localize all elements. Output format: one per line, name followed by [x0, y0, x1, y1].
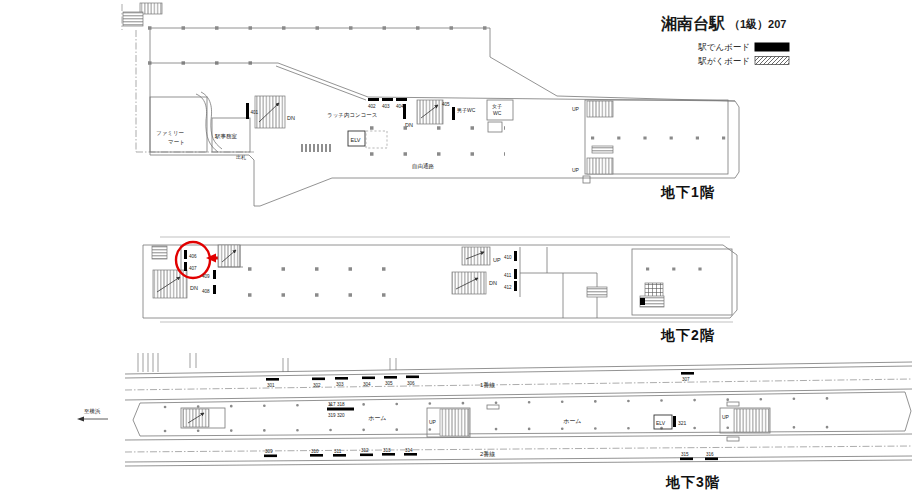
b2f-right-room — [632, 249, 732, 315]
b2f-stair-dn-left: DN — [153, 270, 198, 298]
b3f-columns-row1 — [165, 398, 855, 407]
board-305-label: 305 — [385, 381, 393, 386]
floorplan-drawing: 湘南台駅 （1級）207 駅でんボード 駅がくボード — [0, 0, 919, 491]
ticket-window-label: 出札 — [236, 154, 246, 160]
b1f-elv-label: ELV — [351, 137, 361, 143]
up-label-bottom: UP — [572, 167, 580, 173]
b2f-right-walls — [520, 247, 663, 318]
board-405-bar — [452, 107, 455, 120]
b1f-plan: ファミリー マート 駅事務室 出札 DN 401 ラッチ内コンコース ELV — [122, 3, 739, 206]
dn-label-left: DN — [287, 115, 295, 121]
board-306-label: 306 — [407, 381, 415, 386]
board-307-label: 307 — [682, 377, 690, 382]
board-316-label: 316 — [706, 452, 714, 457]
b2f-stair-up-mid: UP — [462, 247, 501, 265]
b3f-stair-up-right: UP — [720, 408, 770, 433]
board-310-label: 310 — [311, 449, 319, 454]
b2f-up-label: UP — [493, 257, 501, 263]
legend-swatch-hatched — [755, 57, 789, 65]
legend-label-ekigaku-board: 駅がくボード — [697, 56, 750, 66]
family-mart-label-1: ファミリー — [156, 130, 184, 136]
board-317-318-label: 317 318 — [328, 402, 345, 407]
legend-row-ekiden: 駅でんボード — [697, 42, 789, 52]
b2f-dn-label-mid: DN — [489, 280, 497, 286]
board-302-label: 302 — [313, 383, 321, 388]
board-313-label: 313 — [383, 448, 391, 453]
board-402-label: 402 — [368, 104, 376, 109]
board-404-label: 404 — [396, 104, 404, 109]
womens-wc-label-1: 女子 — [492, 103, 502, 110]
board-409-label: 409 — [202, 274, 210, 279]
mens-wc-label: 男子WC — [457, 107, 476, 114]
b3f-stair-up-mid: UP — [427, 408, 470, 437]
board-312-label: 312 — [361, 448, 369, 453]
board-319-320-label: 319 320 — [328, 413, 345, 418]
board-412-label: 412 — [504, 285, 512, 290]
board-304-label: 304 — [363, 382, 371, 387]
b2f-floor-name: 地下2階 — [660, 327, 715, 343]
b1f-stair-up-top-icon — [587, 101, 613, 117]
direction-label: 至横浜 — [84, 408, 101, 415]
b1f-entrance-stairs-icon — [122, 3, 162, 30]
board-321-label: 321 — [678, 420, 687, 426]
b3f-floor-name: 地下3階 — [665, 474, 720, 490]
station-floorplan-sheet: 湘南台駅 （1級）207 駅でんボード 駅がくボード — [0, 0, 919, 491]
family-mart-label-2: マート — [168, 139, 185, 145]
track-2-label: 2番線 — [480, 450, 495, 458]
board-401-label: 401 — [251, 110, 259, 115]
b1f-elevator: ELV — [348, 131, 387, 148]
direction-arrow-icon — [77, 417, 84, 422]
b1f-family-mart-room: ファミリー マート — [150, 92, 222, 152]
b2f-stair-up-left-icon — [218, 245, 243, 267]
b2f-boards-406-407: 406 407 — [184, 250, 197, 271]
up-label-top: UP — [572, 106, 580, 112]
board-407-label: 407 — [189, 266, 197, 271]
b2f-stair-small-topleft-icon — [152, 246, 167, 259]
b3f-upper-structures — [138, 353, 396, 372]
concourse-label: ラッチ内コンコース — [327, 112, 377, 118]
platform-label-1: ホーム — [368, 415, 386, 421]
b1f-stair-dn-left: DN — [255, 96, 295, 128]
b2f-boards-408-409: 409 408 — [202, 270, 216, 294]
b3f-up-right-label: UP — [722, 414, 730, 420]
b1f-inner-walls — [150, 63, 735, 101]
b2f-plan: DN 406 407 409 408 — [143, 237, 737, 343]
board-315-label: 315 — [681, 452, 689, 457]
b3f-elv-label: ELV — [656, 420, 666, 426]
board-403-label: 403 — [382, 104, 390, 109]
board-408-label: 408 — [202, 289, 210, 294]
board-401-bar — [246, 103, 249, 119]
b1f-womens-wc-room: 女子 WC — [487, 100, 513, 132]
b1f-floor-name: 地下1階 — [660, 184, 715, 200]
legend-label-ekiden-board: 駅でんボード — [697, 42, 750, 52]
track-1-label: 1番線 — [480, 381, 495, 389]
b1f-stair-small-icon — [592, 146, 613, 153]
b3f-direction-yokohama: 至横浜 — [77, 408, 108, 422]
station-grade: （1級）207 — [729, 18, 786, 31]
board-406-label: 406 — [189, 254, 197, 259]
b3f-elevator: ELV 321 — [654, 415, 687, 429]
b1f-right-room: UP UP — [572, 100, 731, 183]
b3f-plan: 至横浜 UP ELV 321 UP — [77, 353, 912, 490]
b2f-boards-410-412: 410 411 412 — [504, 251, 517, 291]
b1f-boards-402-404: 402 403 404 — [368, 98, 407, 109]
free-passage-label: 自由通路 — [412, 162, 435, 169]
board-314-label: 314 — [405, 448, 413, 453]
b3f-track-lines — [125, 362, 912, 466]
b2f-stair-small-right-icon — [587, 287, 607, 297]
b1f-stair-dn-mid: DN — [403, 100, 443, 128]
board-303-label: 303 — [336, 382, 344, 387]
b1f-station-office-room: 駅事務室 — [212, 118, 250, 152]
legend-swatch-solid — [755, 43, 789, 51]
b1f-ticket-gates-icon — [302, 144, 330, 152]
b2f-dn-label-left: DN — [190, 285, 198, 291]
b3f-benches — [487, 402, 739, 441]
womens-wc-label-2: WC — [493, 110, 502, 116]
b1f-stair-up-bottom-icon — [587, 158, 613, 174]
board-309-label: 309 — [265, 449, 273, 454]
board-311-label: 311 — [334, 449, 342, 454]
b1f-outline — [150, 28, 739, 206]
board-301-label: 301 — [267, 383, 275, 388]
b2f-stair-dn-mid: DN — [452, 272, 497, 294]
board-411-label: 411 — [504, 273, 512, 278]
station-office-label: 駅事務室 — [214, 133, 238, 139]
header: 湘南台駅 （1級）207 駅でんボード 駅がくボード — [660, 15, 789, 66]
board-410-label: 410 — [504, 255, 512, 260]
legend-row-ekigaku: 駅がくボード — [697, 56, 789, 66]
b3f-stair-left-icon — [181, 408, 225, 428]
station-title: 湘南台駅 — [660, 15, 726, 32]
b3f-boards-platform: 317 318 319 320 — [327, 402, 354, 418]
platform-label-2: ホーム — [563, 418, 581, 424]
board-405-label: 405 — [442, 102, 450, 107]
b3f-up-mid-label: UP — [429, 419, 437, 425]
